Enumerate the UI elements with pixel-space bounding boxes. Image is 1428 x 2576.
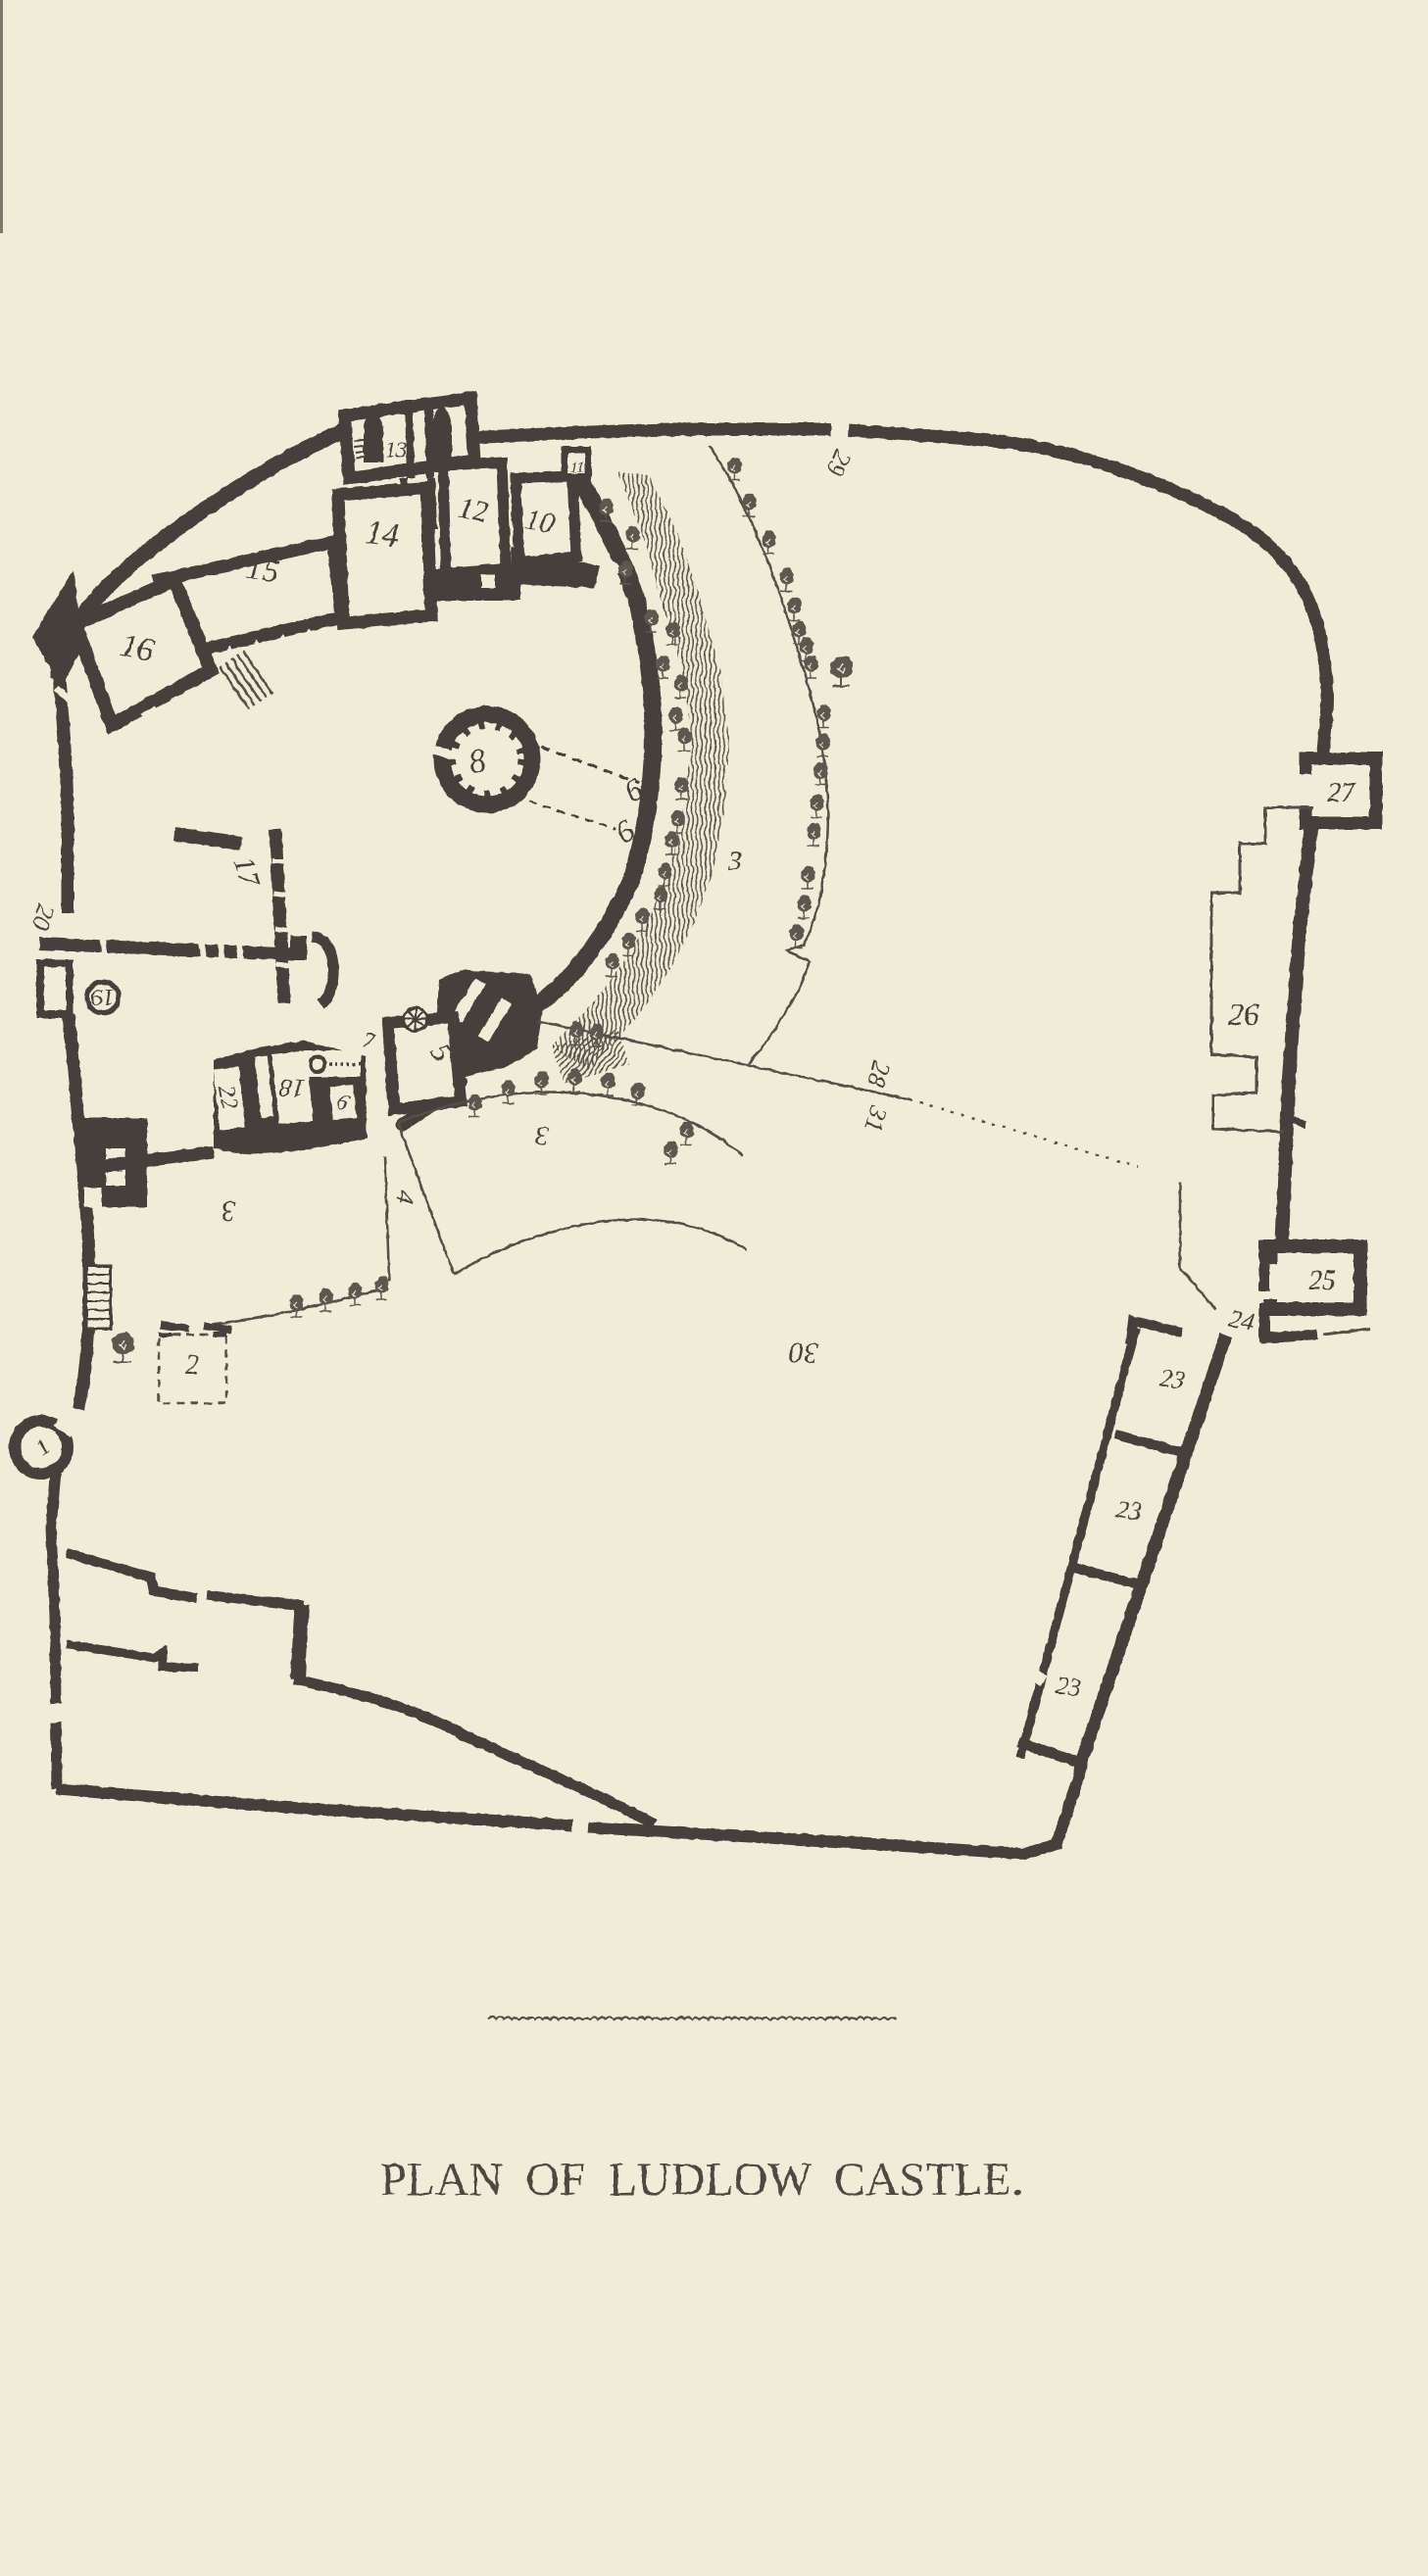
svg-text:30: 30 bbox=[789, 1336, 820, 1369]
svg-text:23: 23 bbox=[1054, 1671, 1083, 1702]
svg-text:27: 27 bbox=[1327, 778, 1355, 808]
svg-text:19: 19 bbox=[91, 984, 115, 1009]
svg-text:14: 14 bbox=[364, 514, 402, 555]
svg-text:12: 12 bbox=[456, 492, 490, 529]
svg-text:18: 18 bbox=[278, 1073, 306, 1103]
svg-text:13: 13 bbox=[385, 437, 407, 462]
svg-text:26: 26 bbox=[1228, 996, 1259, 1032]
svg-text:2: 2 bbox=[185, 1350, 199, 1381]
svg-text:3: 3 bbox=[221, 1194, 237, 1228]
svg-text:PLAN OF LUDLOW CASTLE.: PLAN OF LUDLOW CASTLE. bbox=[380, 2154, 1023, 2206]
svg-text:3: 3 bbox=[727, 847, 742, 877]
svg-text:3: 3 bbox=[534, 1119, 552, 1150]
svg-text:23: 23 bbox=[1114, 1494, 1144, 1526]
svg-text:11: 11 bbox=[570, 460, 585, 476]
svg-text:15: 15 bbox=[243, 549, 282, 590]
svg-text:25: 25 bbox=[1308, 1266, 1336, 1296]
svg-text:23: 23 bbox=[1157, 1363, 1187, 1394]
